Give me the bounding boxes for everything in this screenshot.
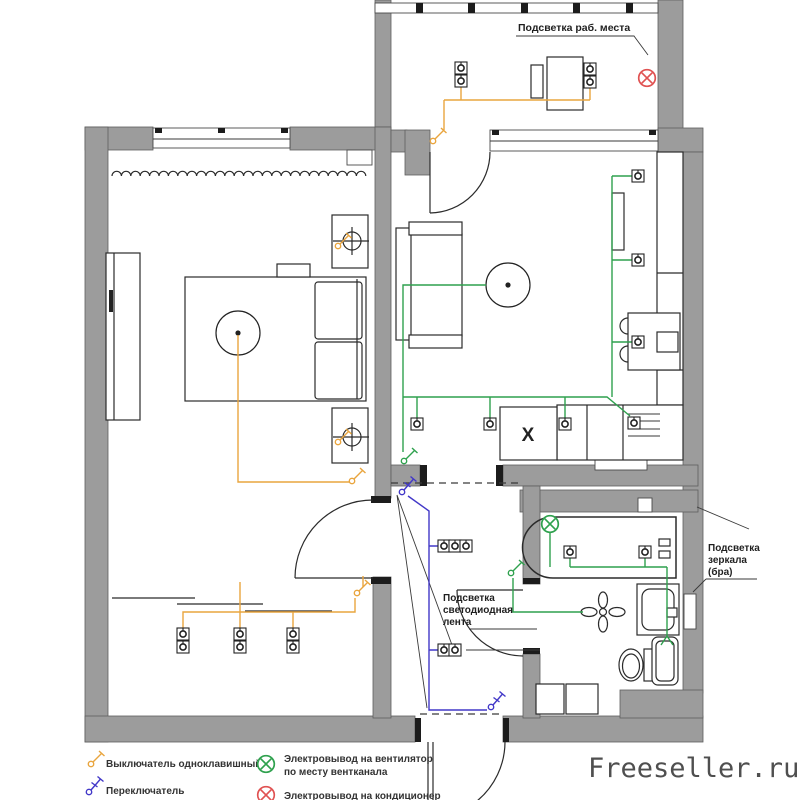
- single-switch-icon: [430, 128, 446, 144]
- power-outlet-icon: [584, 63, 596, 75]
- power-outlet-icon: [287, 628, 299, 640]
- shelf: [612, 193, 624, 250]
- workplace-lighting-label: Подсветка раб. места: [518, 22, 630, 34]
- legend-item-label: Электровывод на кондиционер: [284, 791, 441, 800]
- led-strip-label: Подсветка: [443, 593, 495, 604]
- ceiling-fixture-4lamp: [581, 592, 625, 632]
- fan-outlet-icon: [542, 516, 559, 533]
- power-outlet-icon: [455, 62, 467, 74]
- hall-cabinet: [566, 684, 598, 714]
- chair: [620, 318, 628, 334]
- power-outlet-icon: [639, 546, 651, 558]
- legend-item-label: Переключатель: [106, 786, 184, 797]
- ac-outlet-icon: [258, 787, 275, 800]
- single-switch-icon: [508, 560, 524, 576]
- callout-labels: Подсветка раб. места Подсветка зеркала (…: [443, 22, 760, 629]
- hall-cabinet: [536, 684, 564, 714]
- power-outlet-icon: [287, 641, 299, 653]
- mirror-light-label: зеркала: [708, 555, 747, 566]
- dresser-lines: [112, 598, 332, 611]
- two-way-switch-icon: [86, 777, 103, 795]
- ceiling-light-icon: [486, 263, 530, 307]
- led-strip-label: светодиодная: [443, 605, 513, 616]
- pillow: [315, 282, 362, 339]
- nightstand: [332, 408, 368, 463]
- chair: [620, 346, 628, 362]
- power-outlet-icon: [632, 254, 644, 266]
- power-outlet-icon: [438, 540, 450, 552]
- floor-plan-drawing: Подсветка раб. места Подсветка зеркала (…: [0, 0, 800, 800]
- power-outlet-icon: [455, 75, 467, 87]
- floor-plan-page: Подсветка раб. места Подсветка зеркала (…: [0, 0, 800, 800]
- power-outlet-icon: [559, 418, 571, 430]
- power-outlet-icon: [177, 641, 189, 653]
- power-outlet-icon: [632, 170, 644, 182]
- mirror-sconce: [667, 608, 677, 617]
- power-outlet-icon: [632, 336, 644, 348]
- single-switch-icon: [401, 448, 417, 464]
- legend-item-label: по месту вентканала: [284, 767, 388, 778]
- power-outlet-icon: [438, 644, 450, 656]
- power-outlet-icon: [484, 418, 496, 430]
- watermark: Freeseller.ru: [588, 753, 799, 784]
- stove-symbol-label: X: [522, 425, 535, 446]
- power-outlet-icon: [449, 644, 461, 656]
- balcony-desk: [547, 57, 583, 110]
- single-switch-icon: [349, 468, 365, 484]
- power-outlet-icon: [234, 628, 246, 640]
- wardrobe: [106, 253, 140, 420]
- power-outlet-icon: [449, 540, 461, 552]
- led-strip-label: лента: [443, 617, 472, 628]
- mirror-light-label: (бра): [708, 566, 733, 578]
- fan-outlet-icon: [258, 756, 275, 773]
- ac-outlet-icon: [639, 70, 656, 87]
- power-outlet-icon: [628, 417, 640, 429]
- power-outlet-icon: [411, 418, 423, 430]
- mirror-light-label: Подсветка: [708, 543, 760, 554]
- power-outlet-icon: [177, 628, 189, 640]
- two-way-switch-icon: [488, 692, 505, 710]
- pillow: [315, 342, 362, 399]
- curtain-line: [112, 171, 366, 176]
- power-outlet-icon: [564, 546, 576, 558]
- legend-item-label: Выключатель одноклавишный: [106, 759, 261, 770]
- power-outlet-icon: [584, 76, 596, 88]
- power-outlet-icon: [460, 540, 472, 552]
- kitchen-counter-bottom: [557, 405, 683, 460]
- legend-item-label: Электровывод на вентилятор: [284, 754, 433, 765]
- legend: Выключатель одноклавишный Переключатель …: [86, 751, 440, 800]
- power-outlet-icon: [234, 641, 246, 653]
- single-switch-icon: [88, 751, 104, 767]
- balcony-chair: [531, 65, 543, 98]
